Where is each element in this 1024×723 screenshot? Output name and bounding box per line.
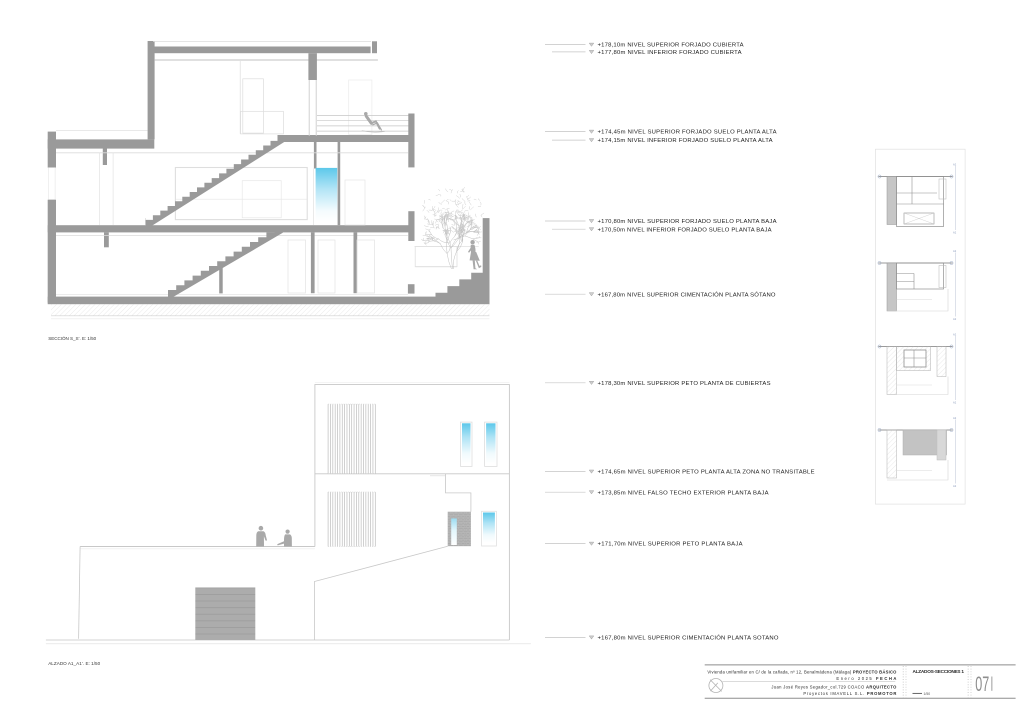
svg-text:+170,50m NIVEL INFERIOR FORJAD: +170,50m NIVEL INFERIOR FORJADO SUELO PL… bbox=[598, 227, 772, 233]
svg-text:ALZADOS-SECCIONES 1: ALZADOS-SECCIONES 1 bbox=[913, 669, 965, 674]
svg-text:A2: A2 bbox=[953, 401, 957, 405]
svg-text:+178,30m NIVEL SUPERIOR PETO P: +178,30m NIVEL SUPERIOR PETO PLANTA DE C… bbox=[598, 381, 771, 387]
svg-text:+167,80m NIVEL SUPERIOR CIMENT: +167,80m NIVEL SUPERIOR CIMENTACIÓN PLAN… bbox=[598, 291, 776, 298]
svg-text:07: 07 bbox=[975, 672, 989, 696]
svg-text:+177,80m NIVEL INFERIOR FORJAD: +177,80m NIVEL INFERIOR FORJADO CUBIERTA bbox=[598, 50, 742, 56]
svg-text:A2: A2 bbox=[953, 231, 957, 235]
svg-text:+167,80m NIVEL SUPERIOR CIMENT: +167,80m NIVEL SUPERIOR CIMENTACIÓN PLAN… bbox=[598, 635, 779, 642]
svg-text:A2: A2 bbox=[953, 317, 957, 321]
svg-text:+171,70m NIVEL SUPERIOR PETO P: +171,70m NIVEL SUPERIOR PETO PLANTA BAJA bbox=[598, 542, 743, 548]
svg-text:+173,85m NIVEL FALSO TECHO EXT: +173,85m NIVEL FALSO TECHO EXTERIOR PLAN… bbox=[598, 490, 769, 496]
svg-text:+178,10m NIVEL SUPERIOR FORJAD: +178,10m NIVEL SUPERIOR FORJADO CUBIERTA bbox=[598, 43, 744, 49]
svg-text:ALZADO A1_A1’. E: 1/50: ALZADO A1_A1’. E: 1/50 bbox=[48, 661, 100, 666]
svg-text:1/50: 1/50 bbox=[924, 692, 931, 696]
svg-text:A2: A2 bbox=[953, 163, 957, 167]
svg-text:A2: A2 bbox=[953, 333, 957, 337]
svg-text:A2: A2 bbox=[953, 416, 957, 420]
svg-text:SECCIÓN S_S’. E: 1/50: SECCIÓN S_S’. E: 1/50 bbox=[48, 335, 96, 341]
svg-text:+170,80m NIVEL SUPERIOR FORJAD: +170,80m NIVEL SUPERIOR FORJADO SUELO PL… bbox=[598, 219, 777, 225]
svg-text:+174,45m NIVEL SUPERIOR FORJAD: +174,45m NIVEL SUPERIOR FORJADO SUELO PL… bbox=[598, 130, 777, 136]
svg-text:+174,65m NIVEL SUPERIOR PETO P: +174,65m NIVEL SUPERIOR PETO PLANTA ALTA… bbox=[598, 470, 815, 476]
svg-text:A2: A2 bbox=[953, 249, 957, 253]
svg-text:Vivienda unifamiliar en C/ de: Vivienda unifamiliar en C/ de la cañada,… bbox=[707, 670, 897, 675]
svg-text:Juan José Reyes Segador_col.72: Juan José Reyes Segador_col.729 COACO AR… bbox=[771, 684, 897, 689]
svg-text:Proyectos IMAVELL S.L. PROMOTO: Proyectos IMAVELL S.L. PROMOTOR bbox=[803, 691, 896, 696]
svg-text:A2: A2 bbox=[953, 484, 957, 488]
svg-text:+174,15m NIVEL INFERIOR FORJAD: +174,15m NIVEL INFERIOR FORJADO SUELO PL… bbox=[598, 138, 773, 144]
